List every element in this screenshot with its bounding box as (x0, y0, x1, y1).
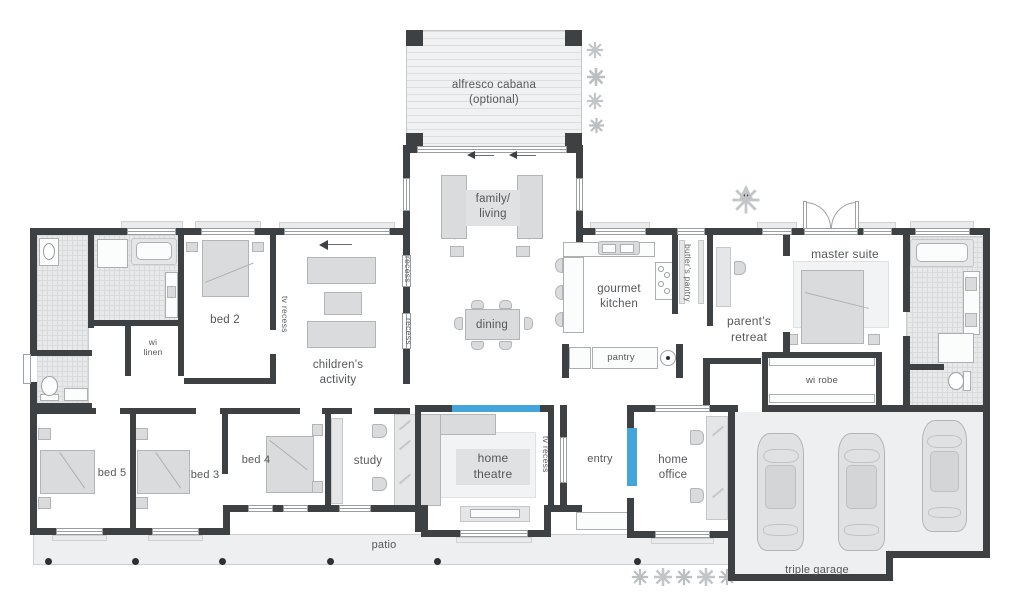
family-window-left (403, 178, 410, 211)
door-opening (30, 356, 37, 382)
patio-post (132, 558, 139, 565)
room-label-bed4: bed 4 (231, 453, 281, 467)
master-window (863, 228, 892, 235)
door-opening (738, 405, 762, 412)
fixture (658, 266, 664, 272)
room-label-children: children’s activity (288, 358, 388, 388)
wall-segment (903, 336, 910, 412)
shape: retreat (731, 330, 767, 344)
bed4-window-1 (248, 505, 273, 512)
car-rear-window (763, 524, 797, 536)
entry-accent-strip (627, 428, 637, 486)
room-label-office: home office (648, 453, 698, 483)
bedside-table (252, 242, 264, 252)
retreat-desk (716, 247, 731, 307)
patio-post (634, 558, 641, 565)
wall-segment (270, 354, 276, 384)
shape: linen (144, 347, 163, 357)
car-rear-window (844, 524, 878, 536)
label-recess: recess (404, 318, 414, 350)
ensuite-shower (938, 333, 974, 363)
desk-chair (734, 261, 746, 275)
room-label-butlers-pantry: butler’s pantry (683, 244, 693, 330)
study-window (339, 505, 371, 512)
cabinet (620, 244, 634, 253)
family-window-right (576, 178, 583, 211)
wc-vanity (64, 388, 88, 401)
car (838, 433, 885, 551)
fixture (43, 243, 55, 260)
patio-post (219, 558, 226, 565)
car-rear-window (928, 507, 961, 518)
shape: family/ (476, 193, 511, 205)
shape: office (659, 469, 687, 481)
shower (97, 239, 128, 268)
robe-shelf (769, 357, 875, 366)
window-sill (651, 538, 714, 544)
cabinet (916, 243, 968, 262)
arrow-left-icon (505, 151, 517, 159)
shape: home (658, 454, 688, 466)
shape: activity (320, 374, 357, 386)
room-label-dining: dining (462, 318, 522, 333)
shape: gourmet (597, 283, 641, 295)
room-label-kitchen: gourmet kitchen (569, 282, 669, 312)
cabinet (136, 242, 172, 260)
wall-segment (783, 234, 790, 256)
study-desk (331, 418, 343, 504)
wall-segment (562, 344, 569, 378)
room-label-master-suite: master suite (800, 247, 890, 263)
plant-icon (696, 567, 716, 587)
label-tv-recess: tv recess (280, 296, 290, 348)
toilet-tank (963, 371, 971, 391)
chair (524, 317, 533, 330)
bedside-table (312, 481, 323, 493)
wall-segment (325, 408, 331, 507)
wall-segment (672, 234, 678, 314)
side-table (450, 246, 464, 257)
desk-chair (690, 488, 704, 503)
wall-segment (93, 320, 184, 326)
bedside-table (135, 428, 148, 440)
door-opening (96, 408, 120, 414)
shape (676, 569, 692, 585)
stool (555, 312, 563, 327)
desk-chair (372, 424, 387, 438)
wall-segment (270, 234, 276, 330)
door-opening (196, 408, 220, 414)
patio-post (434, 558, 441, 565)
bed5-window (56, 528, 103, 535)
window-sill (148, 535, 203, 541)
wall-segment (403, 349, 410, 384)
plant-icon (586, 41, 604, 59)
side-door (23, 354, 31, 384)
wall-segment (910, 364, 944, 370)
plant-icon (631, 568, 649, 586)
desk-chair (372, 477, 387, 491)
furniture (965, 313, 977, 327)
french-door-arc-left (805, 202, 831, 228)
furniture (167, 286, 176, 298)
car (922, 420, 967, 532)
fixture (664, 272, 670, 278)
ensuite-window (915, 228, 970, 235)
sliding-door (417, 146, 567, 153)
plant-icon (653, 567, 673, 587)
wall-segment (184, 378, 276, 384)
room-label-alfresco: alfresco cabana (optional) (414, 78, 574, 108)
desk-chair (690, 430, 704, 445)
wall-segment (707, 234, 713, 326)
bed2-window (201, 228, 255, 235)
wall-segment (222, 414, 228, 474)
shape: parent’s (727, 314, 771, 328)
study-shelf (394, 414, 417, 506)
label-recess: recess (403, 256, 413, 288)
theatre-window (460, 530, 528, 537)
bedside-table (38, 497, 51, 509)
shape (587, 42, 603, 58)
wall-segment (762, 352, 768, 405)
door-leaf (803, 201, 807, 229)
room-label-theatre: home theatre (443, 451, 543, 482)
bed3-window (152, 528, 199, 535)
wall-segment (983, 405, 990, 558)
shape: (optional) (469, 94, 519, 106)
wall-segment (876, 352, 882, 405)
arrow-left-icon (314, 240, 328, 250)
wall-segment (565, 30, 582, 46)
shape (632, 569, 648, 585)
bedside-table (38, 428, 51, 440)
room-label-bed2: bed 2 (200, 313, 250, 328)
bath-window (127, 228, 176, 235)
chair (471, 300, 484, 309)
wall-segment (703, 358, 761, 364)
shape (733, 187, 760, 214)
plant-icon (731, 185, 761, 215)
car-windshield (763, 449, 799, 463)
cabinet (470, 509, 520, 518)
toilet-bowl (41, 376, 58, 396)
children-window (284, 228, 390, 235)
stool (555, 258, 563, 273)
wall-segment (728, 405, 735, 581)
car-windshield (927, 435, 961, 448)
wall-segment (403, 287, 410, 313)
wall-segment (403, 145, 417, 153)
pantry-shelf (569, 347, 591, 369)
shape: living (479, 208, 506, 220)
wall-segment (178, 234, 184, 328)
bed2-bed (202, 240, 249, 297)
shape (587, 68, 605, 86)
car-roof (765, 465, 796, 509)
shape: theatre (474, 467, 513, 481)
butlers-shelf (698, 240, 704, 304)
room-label-family-living: family/ living (443, 192, 543, 222)
shape: children’s (313, 359, 363, 371)
shape (697, 568, 715, 586)
stool (555, 285, 563, 300)
car-roof (846, 465, 877, 509)
wall-segment (125, 326, 131, 376)
plant-icon (586, 67, 606, 87)
kitchen-window (595, 228, 646, 235)
room-label-wi-linen: wi linen (133, 337, 173, 357)
retreat-window (762, 228, 792, 235)
wall-segment (903, 234, 910, 312)
master-door-gap (804, 228, 858, 235)
shape (589, 118, 604, 133)
patio-post (45, 558, 52, 565)
activity-table (324, 292, 362, 315)
room-label-bed5: bed 5 (87, 466, 137, 480)
toilet-bowl (948, 372, 964, 390)
bedside-table (312, 424, 323, 436)
bedside-table (186, 242, 198, 252)
wall-segment (406, 30, 423, 46)
shape (587, 93, 603, 109)
theatre-accent-strip (452, 405, 540, 412)
window-sill (456, 537, 532, 543)
shape: wi (149, 337, 157, 347)
entry-window (560, 437, 567, 483)
plant-icon (586, 92, 604, 110)
chair (499, 300, 512, 309)
master-bed (801, 270, 864, 344)
sofa (307, 257, 376, 284)
entry-porch-step (576, 512, 628, 530)
room-label-pantry: pantry (596, 352, 646, 364)
car (757, 433, 804, 551)
bedside-table (868, 334, 880, 345)
room-label-entry: entry (575, 452, 625, 466)
furniture (965, 277, 977, 291)
car-roof (930, 451, 959, 493)
wall-segment (178, 326, 184, 376)
patio-post (327, 558, 334, 565)
wall-segment (88, 234, 94, 328)
shape (654, 568, 672, 586)
arrow-left-icon (463, 151, 475, 159)
room-label-bed3: bed 3 (180, 468, 230, 482)
room-label-parents-retreat: parent’s retreat (709, 314, 789, 345)
door-opening (300, 408, 322, 414)
shape: alfresco cabana (452, 79, 536, 91)
floor-plan: alfresco cabana (optional) family/ livin… (0, 0, 1024, 600)
chair (499, 341, 512, 350)
shape: kitchen (600, 298, 638, 310)
car-windshield (844, 449, 880, 463)
bed4-window-2 (283, 505, 308, 512)
wall-segment (728, 405, 990, 412)
wall-segment (983, 228, 990, 412)
bedside-table (135, 497, 148, 509)
room-label-study: study (343, 454, 393, 469)
room-label-garage: triple garage (777, 563, 857, 577)
room-label-patio: patio (359, 538, 409, 552)
wall-segment (415, 408, 421, 532)
wall-segment (703, 358, 710, 405)
wall-segment (886, 551, 990, 558)
plant-icon (675, 568, 693, 586)
office-top-window (655, 405, 710, 412)
office-window (655, 531, 710, 538)
french-door-arc-right (831, 202, 857, 228)
wall-segment (762, 352, 882, 358)
marker (666, 356, 670, 360)
window-sill (52, 535, 107, 541)
wall-segment (676, 344, 683, 378)
plant-icon (588, 117, 605, 134)
shape: home (478, 451, 509, 465)
butlers-window (677, 228, 705, 235)
door-opening (352, 408, 374, 414)
chair (471, 341, 484, 350)
door-leaf (855, 201, 859, 229)
robe-shelf (769, 394, 875, 403)
cabinet (602, 244, 616, 253)
wall-segment (403, 238, 410, 255)
wall-segment (30, 350, 92, 356)
theatre-sofa (420, 414, 441, 506)
sofa (307, 321, 376, 348)
side-table (516, 246, 530, 257)
wall-segment (566, 145, 583, 153)
room-label-wi-robe: wi robe (792, 375, 852, 387)
